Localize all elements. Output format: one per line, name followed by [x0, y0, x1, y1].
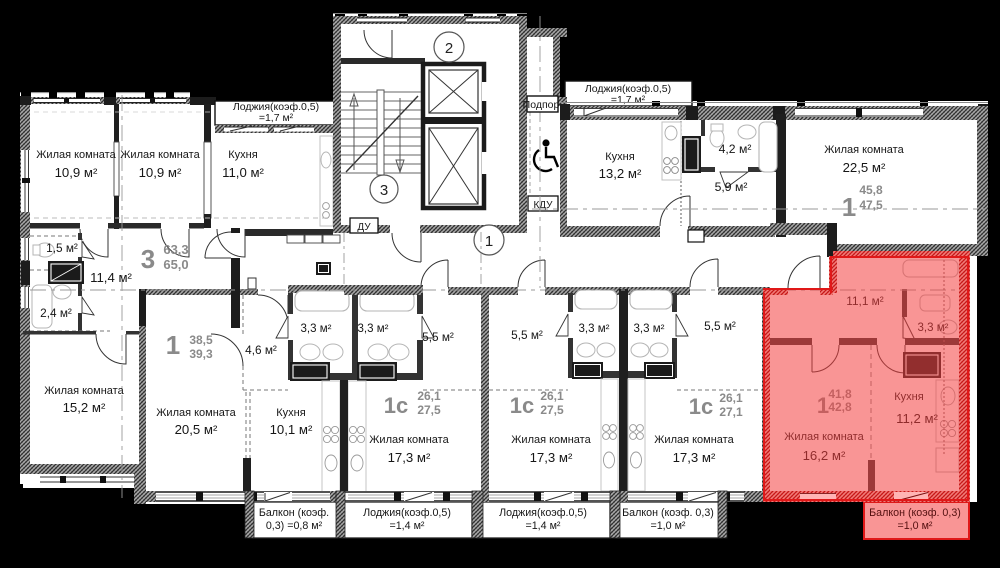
- svg-text:2,4 м²: 2,4 м²: [40, 306, 72, 320]
- svg-text:5,5 м²: 5,5 м²: [511, 328, 543, 342]
- svg-text:=1,7 м²: =1,7 м²: [611, 94, 646, 106]
- svg-text:20,5 м²: 20,5 м²: [175, 422, 218, 437]
- svg-text:3,3 м²: 3,3 м²: [301, 323, 332, 335]
- svg-text:Кухня: Кухня: [228, 149, 257, 161]
- svg-text:47,5: 47,5: [859, 198, 883, 212]
- svg-text:3,3 м²: 3,3 м²: [579, 323, 610, 335]
- svg-text:Жилая комната: Жилая комната: [654, 434, 734, 446]
- svg-text:5,5 м²: 5,5 м²: [422, 330, 454, 344]
- svg-text:11,4 м²: 11,4 м²: [90, 270, 132, 285]
- svg-text:10,9 м²: 10,9 м²: [55, 165, 98, 180]
- svg-text:1с: 1с: [384, 393, 408, 418]
- svg-text:15,2 м²: 15,2 м²: [63, 400, 106, 415]
- svg-text:10,1 м²: 10,1 м²: [270, 422, 313, 437]
- svg-text:5,9 м²: 5,9 м²: [715, 180, 748, 194]
- svg-text:Балкон (коэф. 0,3): Балкон (коэф. 0,3): [869, 507, 961, 519]
- svg-text:Жилая комната: Жилая комната: [44, 385, 124, 397]
- svg-text:=1,4 м²: =1,4 м²: [526, 520, 561, 532]
- svg-text:ДУ: ДУ: [357, 222, 371, 233]
- svg-text:0,3) =0,8 м²: 0,3) =0,8 м²: [266, 520, 323, 532]
- svg-text:Лоджия(коэф.0,5): Лоджия(коэф.0,5): [363, 507, 451, 519]
- svg-text:1: 1: [485, 233, 493, 250]
- svg-text:1: 1: [166, 330, 180, 360]
- svg-text:Балкон (коэф. 0,3): Балкон (коэф. 0,3): [622, 507, 714, 519]
- svg-text:17,3 м²: 17,3 м²: [673, 450, 716, 465]
- svg-text:65,0: 65,0: [163, 257, 188, 272]
- svg-text:Жилая комната: Жилая комната: [511, 434, 591, 446]
- svg-text:Кухня: Кухня: [276, 407, 305, 419]
- svg-text:1с: 1с: [689, 394, 713, 419]
- svg-text:Подпор: Подпор: [523, 99, 560, 111]
- svg-text:11,0 м²: 11,0 м²: [222, 165, 264, 180]
- svg-text:3: 3: [380, 182, 388, 199]
- svg-text:26,1: 26,1: [417, 389, 441, 403]
- svg-text:38,5: 38,5: [189, 333, 213, 347]
- svg-text:Жилая комната: Жилая комната: [369, 434, 449, 446]
- svg-text:5,5 м²: 5,5 м²: [704, 319, 736, 333]
- svg-text:13,2 м²: 13,2 м²: [599, 166, 642, 181]
- svg-text:Жилая комната: Жилая комната: [36, 149, 116, 161]
- svg-text:Кухня: Кухня: [605, 151, 634, 163]
- svg-text:27,1: 27,1: [719, 405, 743, 419]
- svg-text:1с: 1с: [510, 393, 534, 418]
- svg-text:=1,0 м²: =1,0 м²: [898, 520, 933, 532]
- svg-text:Жилая комната: Жилая комната: [120, 149, 200, 161]
- svg-text:17,3 м²: 17,3 м²: [530, 450, 573, 465]
- svg-text:3,3 м²: 3,3 м²: [634, 323, 665, 335]
- svg-text:Лоджия(коэф.0,5): Лоджия(коэф.0,5): [499, 507, 587, 519]
- svg-text:27,5: 27,5: [540, 403, 564, 417]
- svg-text:10,9 м²: 10,9 м²: [139, 165, 182, 180]
- svg-text:45,8: 45,8: [859, 183, 883, 197]
- svg-text:4,6 м²: 4,6 м²: [245, 343, 277, 357]
- svg-text:27,5: 27,5: [417, 403, 441, 417]
- svg-text:1,5 м²: 1,5 м²: [46, 241, 78, 255]
- svg-text:63,3: 63,3: [163, 242, 188, 257]
- svg-text:=1,0 м²: =1,0 м²: [651, 520, 686, 532]
- svg-text:Жилая комната: Жилая комната: [156, 407, 236, 419]
- svg-text:Балкон (коэф.: Балкон (коэф.: [259, 507, 329, 519]
- svg-text:22,5 м²: 22,5 м²: [843, 160, 886, 175]
- svg-text:1: 1: [842, 192, 856, 222]
- svg-text:Жилая комната: Жилая комната: [824, 144, 904, 156]
- svg-text:26,1: 26,1: [719, 391, 743, 405]
- svg-text:4,2 м²: 4,2 м²: [719, 142, 752, 156]
- svg-text:=1,4 м²: =1,4 м²: [390, 520, 425, 532]
- svg-text:39,3: 39,3: [189, 347, 213, 361]
- svg-text:17,3 м²: 17,3 м²: [388, 450, 431, 465]
- svg-text:3,3 м²: 3,3 м²: [358, 323, 389, 335]
- svg-text:26,1: 26,1: [540, 389, 564, 403]
- svg-text:=1,7 м²: =1,7 м²: [259, 112, 294, 124]
- svg-text:3: 3: [141, 244, 155, 274]
- svg-text:2: 2: [445, 40, 453, 57]
